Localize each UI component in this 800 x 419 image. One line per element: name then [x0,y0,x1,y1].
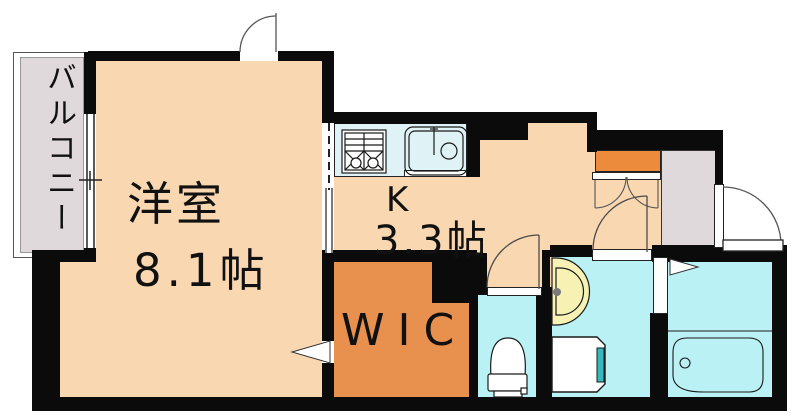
wall [715,130,723,187]
wall [322,250,334,397]
wall [334,112,480,124]
door-opening [241,51,278,61]
wall [542,250,550,287]
door-opening [592,249,652,261]
living-room-label: 洋室 8.1帖 [127,168,270,299]
wall [480,112,528,140]
wall [467,112,480,177]
door-opening [487,287,542,296]
living-room-name: 洋室 [127,168,270,234]
wall [322,52,334,123]
wall [550,245,592,257]
entrance-door-swing-icon [723,187,783,251]
shoe-cabinet-front [592,172,661,180]
living-room-size: 8.1帖 [133,234,270,299]
room-kitchen-floor [528,123,587,177]
wall [32,250,60,410]
wic-opening [322,341,334,363]
wall [469,287,478,397]
bath-door-opening [653,257,668,314]
shoe-cabinet [595,150,661,172]
kitchen-size: 3.3帖 [374,208,490,266]
floorplan: バルコニー 洋室 8.1帖 K 3.3帖 WIC [0,0,800,419]
kitchen-counter [334,123,467,177]
wall [587,130,723,150]
counter-front [404,170,467,177]
wall [88,51,240,61]
wall [32,397,787,411]
room-kitchen-floor [480,140,528,177]
partition-gap [325,188,333,253]
balcony-label: バルコニー [36,62,80,257]
wall [84,246,96,262]
room-bathroom [668,258,772,397]
room-living-extension [60,262,96,397]
wall [772,250,787,397]
room-washroom [552,257,653,397]
wic-label: WIC [341,305,467,356]
entrance-door-opening [714,184,724,248]
wall [650,313,668,397]
wall [84,52,96,114]
wall [528,112,587,123]
room-toilet [478,295,536,397]
window-gap [84,114,96,248]
genkan-entry [661,150,717,250]
door-swing-icon [240,13,276,52]
wall [536,287,552,397]
